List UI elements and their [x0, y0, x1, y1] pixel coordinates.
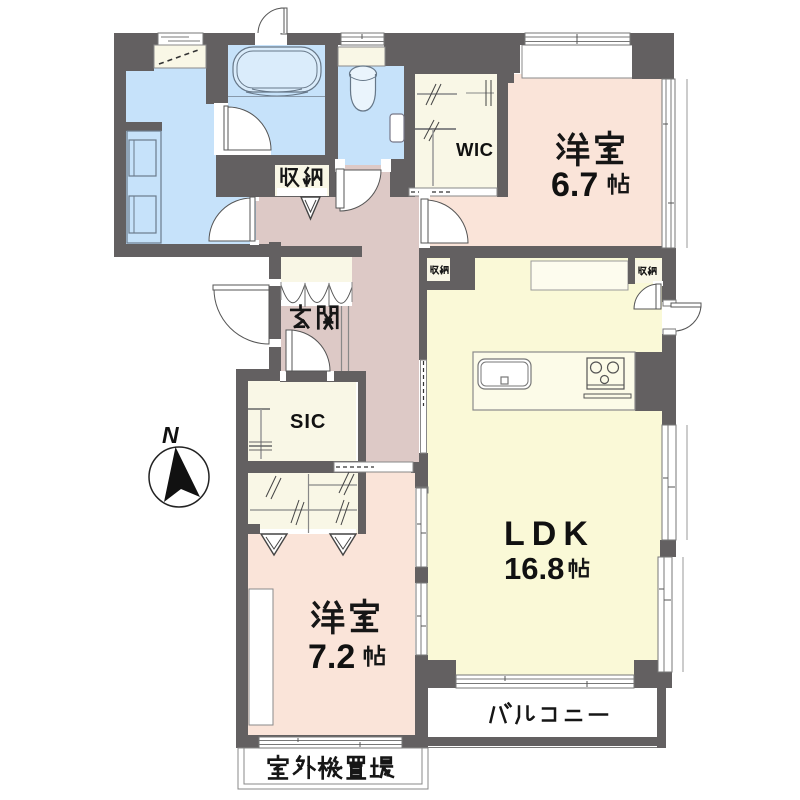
svg-text:7.2: 7.2 [308, 638, 355, 676]
svg-text:N: N [162, 422, 179, 448]
svg-text:LDK: LDK [504, 515, 595, 553]
svg-text:6.7: 6.7 [551, 166, 598, 204]
svg-text:16.8: 16.8 [504, 551, 564, 586]
svg-text:WIC: WIC [456, 139, 493, 160]
svg-text:SIC: SIC [290, 411, 326, 433]
